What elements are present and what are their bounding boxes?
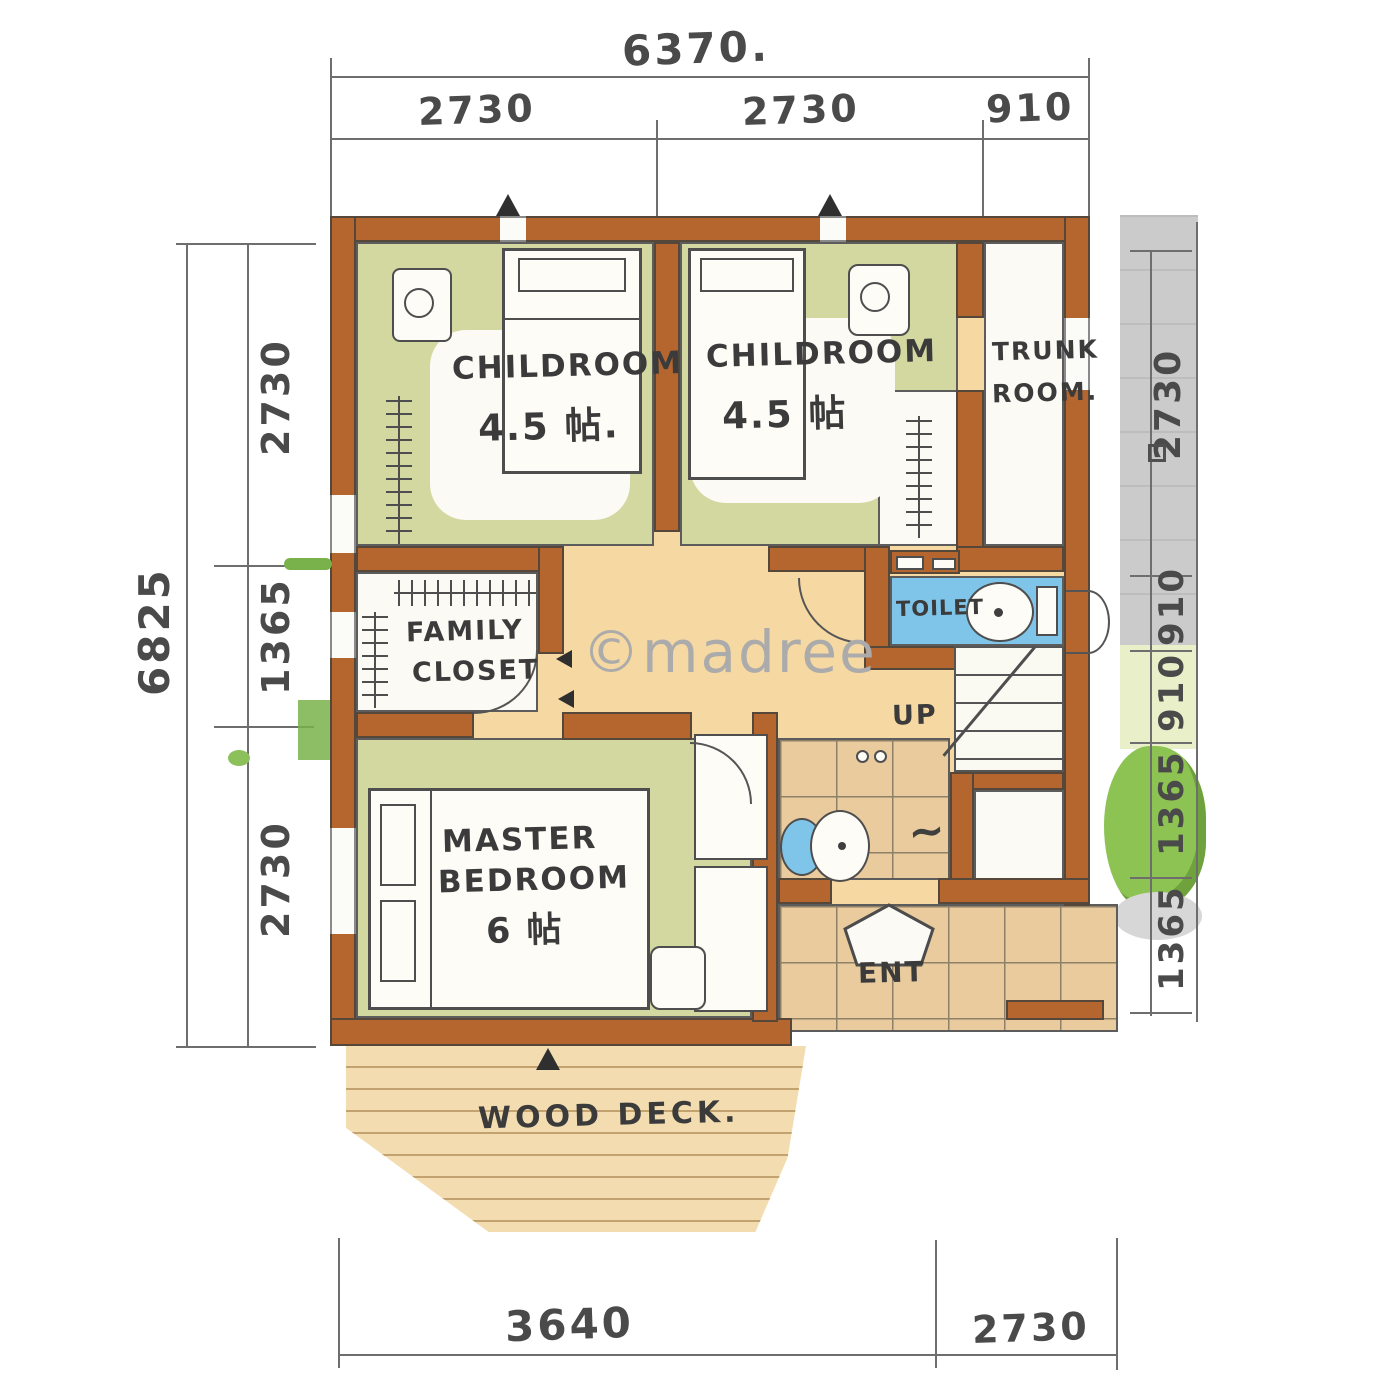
dim-left-seg2: 1365 (254, 577, 298, 695)
dim-tick (1088, 58, 1090, 216)
entrance-step (1006, 1000, 1104, 1020)
dim-tick (338, 1238, 340, 1368)
wall-master-top (562, 712, 692, 740)
stairs-icon (954, 646, 1064, 772)
dim-tick (330, 58, 332, 216)
dim-tick (1130, 742, 1192, 744)
dim-top-seg1: 2730 (417, 86, 536, 134)
dresser-bowl (404, 288, 434, 318)
window (500, 216, 526, 242)
toilet-drain (994, 608, 1003, 617)
dim-bottom-seg1: 3640 (504, 1298, 635, 1351)
dim-tick (656, 120, 658, 216)
master-bedroom-name-line1: MASTER (442, 820, 598, 860)
sliding-door-mark: ~ (905, 804, 947, 859)
vanity-bowl (860, 282, 890, 312)
dim-tick (1130, 250, 1192, 252)
wall-childrooms-divider (654, 242, 680, 532)
section-arrow-icon (536, 1048, 560, 1070)
plant-mark (228, 750, 250, 766)
dim-top-seg2: 2730 (741, 86, 860, 134)
window (330, 828, 356, 934)
childroom-left-area: 4.5 帖. (477, 394, 620, 452)
watermark: ©madree (582, 618, 877, 686)
pillow (700, 258, 794, 292)
faucet-icon (874, 750, 887, 763)
dim-tick (176, 1046, 316, 1048)
door-arrow-icon (558, 690, 574, 708)
toilet-name: TOILET (896, 595, 985, 621)
window-marker-icon (1148, 444, 1166, 462)
dim-tick (935, 1240, 937, 1368)
hanger-rail-icon (906, 420, 932, 534)
wood-deck (346, 1046, 806, 1232)
dim-tick (982, 120, 984, 216)
family-closet-name-line1: FAMILY (406, 614, 524, 648)
faucet-icon (856, 750, 869, 763)
entrance-name: ENT (858, 955, 927, 990)
dim-right-seg2: 910 (1152, 566, 1192, 646)
wall-entrance-top-left (778, 878, 832, 904)
family-closet-name-line2: CLOSET (412, 654, 540, 688)
plant-mark (298, 700, 330, 760)
childroom-right-area: 4.5 帖 (721, 382, 848, 439)
hanger-rail-icon (362, 616, 388, 704)
wall-family-closet-right (538, 546, 564, 654)
dim-tick (1116, 1238, 1118, 1370)
wood-deck-name: WOOD DECK. (478, 1095, 740, 1137)
hanger-rail-icon (398, 580, 532, 606)
toilet-tank (1036, 586, 1058, 636)
childroom-right-name: CHILDROOM (706, 333, 938, 375)
wall-stair-closet-left (950, 772, 974, 894)
master-bedroom-area: 6 帖 (485, 901, 564, 954)
pillow (380, 900, 416, 982)
dim-left-seg3: 2730 (254, 820, 298, 938)
floorplan-sketch: 6370. 2730 2730 910 6825 2730 1365 2730 … (0, 0, 1400, 1400)
childroom-left-name: CHILDROOM (452, 345, 684, 387)
dim-line (1196, 222, 1198, 1022)
trunk-room-name-line2: ROOM. (992, 377, 1099, 409)
dim-line (330, 138, 1090, 140)
pillow (518, 258, 626, 292)
dim-right-seg5: 1365 (1152, 884, 1192, 991)
dim-line (330, 76, 1090, 78)
dim-left-total: 6825 (130, 567, 179, 696)
dim-bottom-seg2: 2730 (971, 1304, 1090, 1352)
wall-trunk-left-lower (956, 390, 984, 560)
window (330, 612, 356, 658)
window (330, 495, 356, 553)
door-arrow-icon (556, 650, 572, 668)
washbasin-drain (838, 842, 846, 850)
dim-line (186, 243, 188, 1048)
pillow (380, 804, 416, 886)
section-arrow-icon (496, 194, 520, 216)
hanger-rail-icon (386, 400, 412, 540)
plant-mark (284, 558, 332, 570)
dim-tick (176, 243, 316, 245)
dim-tick (1130, 1012, 1192, 1014)
master-bedroom-name-line2: BEDROOM (438, 859, 631, 900)
stool-icon (650, 946, 706, 1010)
dim-line (247, 243, 249, 1048)
door-arc-icon (1066, 590, 1110, 654)
bed-crease (502, 318, 642, 320)
dim-line (338, 1354, 1118, 1356)
section-arrow-icon (818, 194, 842, 216)
wall-family-closet-bottom (356, 712, 474, 738)
porch-edge (792, 1030, 1118, 1032)
dim-left-seg1: 2730 (254, 338, 298, 456)
wall-entrance-top-right (938, 878, 1090, 904)
dim-tick (1130, 877, 1192, 879)
dim-right-seg3: 910 (1152, 652, 1192, 732)
wall-below-childroom-left (356, 546, 564, 572)
toilet-shelf (896, 556, 924, 570)
porch-edge (1116, 906, 1118, 1032)
trunk-room-name-line1: TRUNK (992, 335, 1100, 367)
wall-trunk-bottom (956, 546, 1064, 572)
bed-crease (430, 788, 432, 1010)
dim-top-total: 6370. (621, 21, 770, 75)
outer-wall-top (330, 216, 1090, 242)
window (820, 216, 846, 242)
dim-top-seg3: 910 (985, 84, 1075, 131)
toilet-shelf (932, 558, 956, 570)
stairs-up-label: UP (892, 699, 939, 731)
wall-trunk-left-upper (956, 242, 984, 318)
outer-wall-bottom (330, 1018, 792, 1046)
dim-right-seg4: 1365 (1152, 749, 1192, 856)
